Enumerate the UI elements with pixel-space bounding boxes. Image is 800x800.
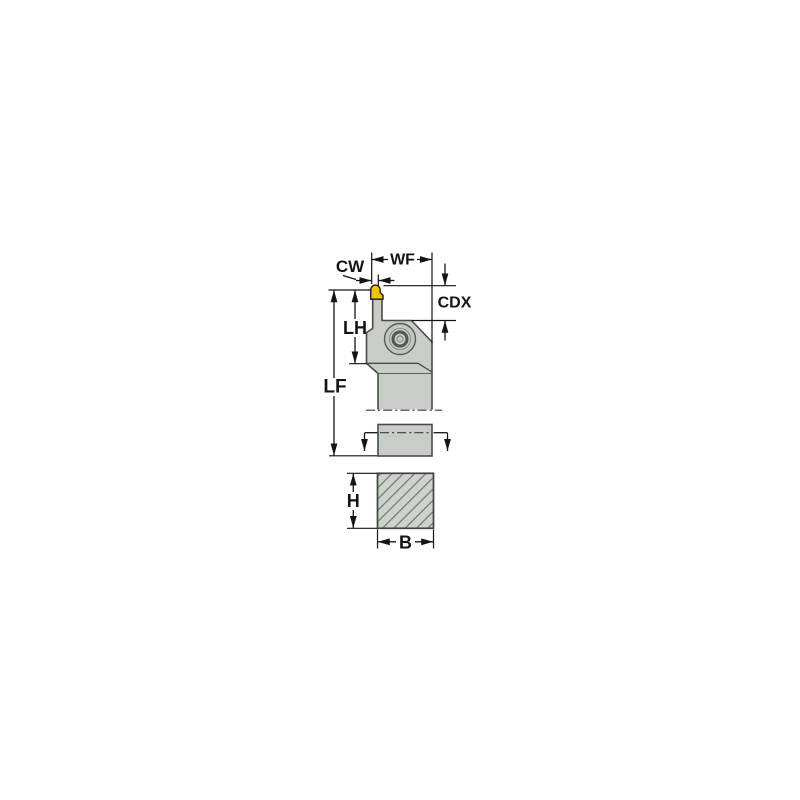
toolholder-dimension-drawing: WF CW CDX (0, 0, 800, 800)
dimension-b: B (378, 530, 434, 553)
shank-lower-piece (378, 425, 432, 457)
section-hatching (378, 473, 434, 528)
dimension-lh: LH (329, 290, 372, 364)
dimension-h: H (347, 473, 377, 528)
dimension-h-label: H (347, 491, 360, 511)
clamp-screw-icon (385, 324, 416, 355)
dimension-lf-label: LF (323, 377, 346, 398)
dimension-b-label: B (399, 532, 412, 552)
cutting-insert (371, 285, 383, 299)
dimension-wf-label: WF (390, 252, 415, 269)
dimension-cw-label: CW (336, 257, 365, 276)
dimension-cdx-label: CDX (438, 294, 472, 311)
drawing-svg: WF CW CDX (0, 0, 800, 800)
dimension-cw: CW (336, 257, 395, 286)
dimension-lf: LF (323, 290, 377, 456)
shank-cross-section (378, 473, 434, 528)
dimension-lh-label: LH (343, 318, 367, 338)
